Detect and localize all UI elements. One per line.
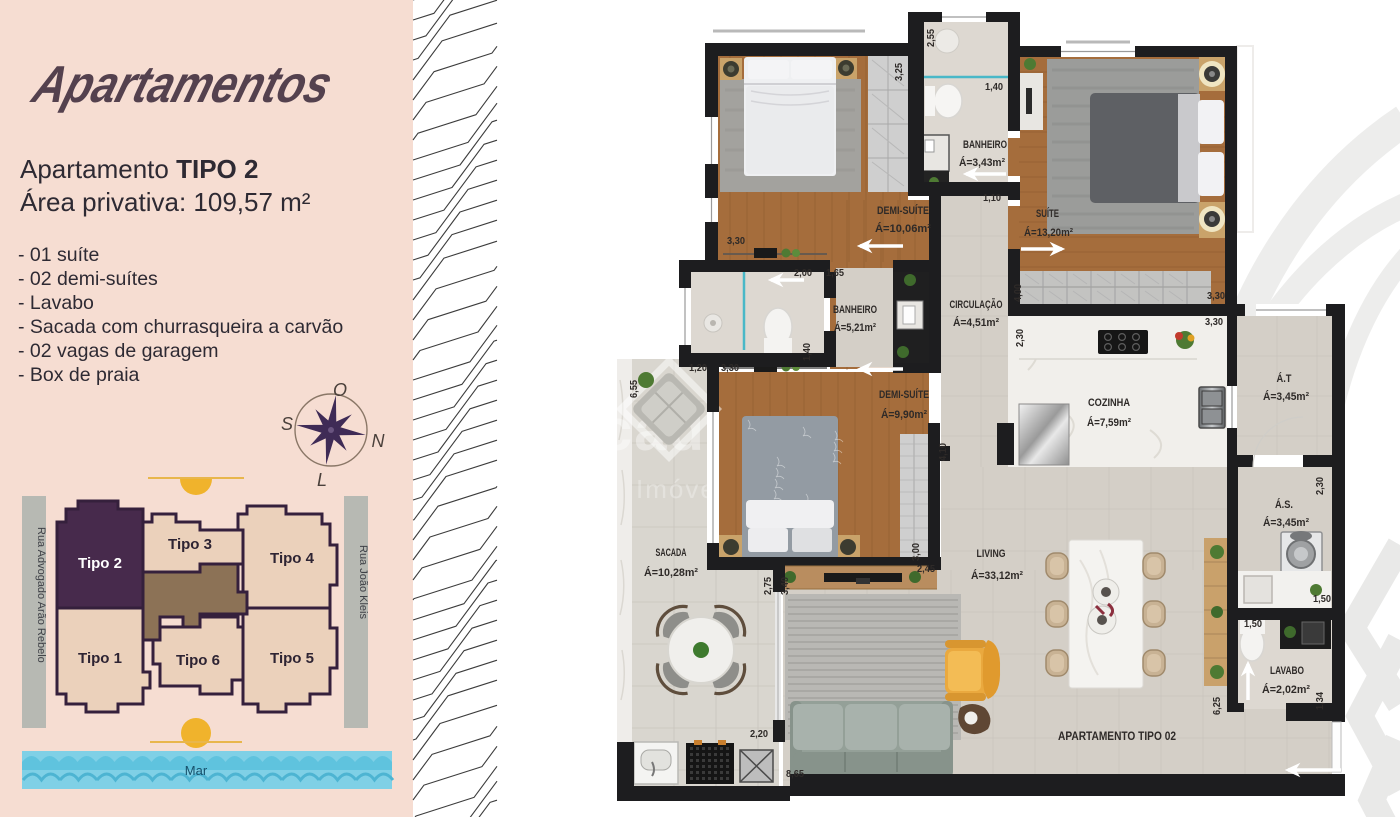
svg-text:1,10: 1,10 [983, 192, 1001, 204]
svg-text:2,30: 2,30 [1314, 477, 1326, 495]
svg-text:1,20: 1,20 [689, 362, 707, 374]
svg-text:Á.S.: Á.S. [1275, 498, 1293, 511]
svg-text:Á=3,45m²: Á=3,45m² [1263, 516, 1309, 529]
svg-text:- 01 suíte: - 01 suíte [18, 244, 99, 266]
svg-text:Á=7,59m²: Á=7,59m² [1087, 416, 1131, 429]
svg-text:Á=10,28m²: Á=10,28m² [644, 566, 698, 579]
svg-text:Á=33,12m²: Á=33,12m² [971, 569, 1023, 582]
svg-text:Rua Advogado Arão Rebelo: Rua Advogado Arão Rebelo [35, 527, 47, 663]
svg-text:Imóve: Imóve [636, 474, 717, 504]
svg-text:1,65: 1,65 [826, 267, 844, 279]
svg-text:Á=2,02m²: Á=2,02m² [1262, 683, 1310, 696]
svg-text:Á=3,45m²: Á=3,45m² [1263, 390, 1309, 403]
svg-text:3,00: 3,00 [910, 543, 922, 561]
svg-text:Tipo 4: Tipo 4 [270, 550, 315, 567]
svg-text:6,55: 6,55 [628, 380, 640, 398]
svg-text:O: O [333, 380, 347, 400]
svg-text:S: S [281, 414, 293, 434]
svg-text:- Lavabo: - Lavabo [18, 292, 94, 314]
svg-text:Á=4,51m²: Á=4,51m² [953, 316, 999, 329]
svg-text:6,25: 6,25 [1211, 697, 1223, 715]
svg-text:LIVING: LIVING [977, 548, 1006, 560]
svg-text:Mar: Mar [185, 763, 208, 778]
svg-text:N: N [372, 431, 386, 451]
svg-text:BANHEIRO: BANHEIRO [833, 304, 877, 316]
svg-text:Á=3,43m²: Á=3,43m² [959, 156, 1005, 169]
svg-text:DEMI-SUÍTE: DEMI-SUÍTE [879, 388, 929, 401]
svg-text:Tipo 6: Tipo 6 [176, 652, 220, 669]
svg-text:2,45: 2,45 [917, 563, 935, 575]
svg-text:Á=9,90m²: Á=9,90m² [881, 408, 927, 421]
svg-text:1,40: 1,40 [985, 81, 1003, 93]
svg-text:3,30: 3,30 [1207, 290, 1225, 302]
svg-text:1,50: 1,50 [1313, 593, 1331, 605]
svg-text:3,25: 3,25 [893, 63, 905, 81]
svg-text:- Box de praia: - Box de praia [18, 364, 140, 386]
svg-text:LAVABO: LAVABO [1270, 665, 1304, 677]
svg-text:SUÍTE: SUÍTE [1036, 207, 1059, 220]
svg-text:3,30: 3,30 [1205, 316, 1223, 328]
svg-text:Tipo 3: Tipo 3 [168, 536, 212, 553]
svg-text:2,55: 2,55 [925, 29, 937, 47]
svg-text:3,40: 3,40 [779, 577, 791, 595]
svg-text:Tipo 5: Tipo 5 [270, 650, 314, 667]
svg-text:8,65: 8,65 [786, 768, 804, 780]
svg-text:4,00: 4,00 [1012, 284, 1024, 302]
svg-text:3,30: 3,30 [721, 362, 739, 374]
svg-text:- 02 vagas de garagem: - 02 vagas de garagem [18, 340, 219, 362]
svg-text:CIRCULAÇÃO: CIRCULAÇÃO [950, 298, 1003, 311]
svg-text:3,30: 3,30 [727, 235, 745, 247]
svg-text:Apartamentos: Apartamentos [25, 56, 339, 114]
svg-text:- Sacada com churrasqueira a c: - Sacada com churrasqueira a carvão [18, 316, 343, 338]
svg-text:Á.T: Á.T [1277, 372, 1292, 385]
svg-text:Á=10,06m²: Á=10,06m² [875, 222, 931, 235]
svg-text:2,00: 2,00 [794, 267, 812, 279]
svg-text:Rua João Kleis: Rua João Kleis [357, 545, 369, 619]
svg-text:DEMI-SUÍTE: DEMI-SUÍTE [877, 204, 929, 217]
svg-text:4,10: 4,10 [937, 443, 949, 461]
svg-text:L: L [317, 470, 327, 490]
svg-text:1,40: 1,40 [801, 343, 813, 361]
svg-text:Área privativa: 109,57 m²: Área privativa: 109,57 m² [20, 187, 311, 217]
svg-text:SACADA: SACADA [656, 547, 687, 559]
svg-text:2,30: 2,30 [1014, 329, 1026, 347]
svg-text:1,34: 1,34 [1314, 692, 1326, 710]
svg-text:Apartamento TIPO 2: Apartamento TIPO 2 [20, 154, 258, 184]
svg-text:Á=5,21m²: Á=5,21m² [834, 321, 876, 334]
svg-text:- 02 demi-suítes: - 02 demi-suítes [18, 268, 158, 290]
svg-text:Á=13,20m²: Á=13,20m² [1024, 226, 1073, 239]
svg-text:BANHEIRO: BANHEIRO [963, 139, 1007, 151]
svg-text:COZINHA: COZINHA [1088, 397, 1130, 409]
svg-text:1,50: 1,50 [1244, 618, 1262, 630]
svg-text:Tipo 1: Tipo 1 [78, 650, 122, 667]
svg-text:2,75: 2,75 [762, 577, 774, 595]
svg-text:2,20: 2,20 [750, 728, 768, 740]
svg-text:Tipo 2: Tipo 2 [78, 555, 122, 572]
svg-text:APARTAMENTO TIPO 02: APARTAMENTO TIPO 02 [1058, 729, 1176, 743]
